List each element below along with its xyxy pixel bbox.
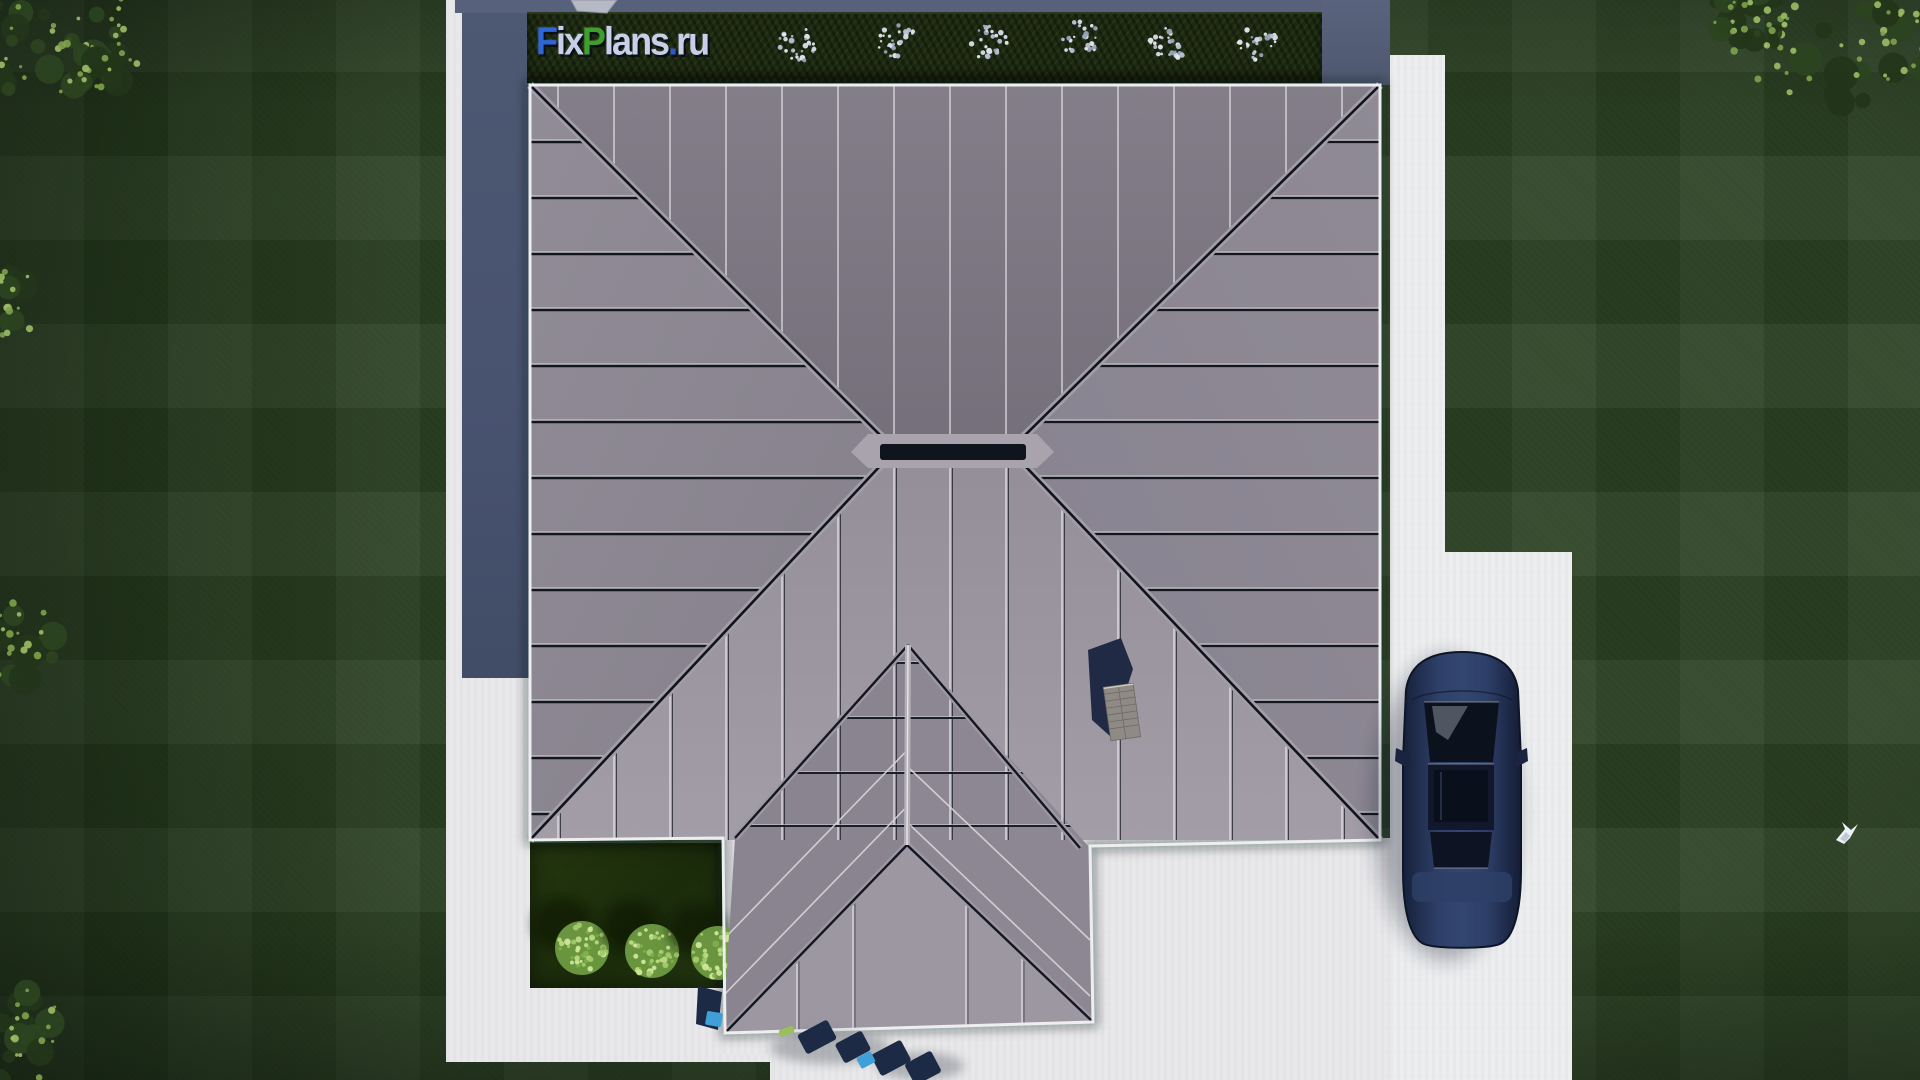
hedge-flower-clusters (778, 20, 1278, 63)
parked-car (1374, 652, 1528, 960)
car-rear-window (1430, 832, 1492, 868)
render-overlay (0, 0, 1920, 1080)
rooftop-cutoff-object (571, 0, 617, 13)
ridge-cap (880, 444, 1026, 460)
flying-bird (1836, 822, 1858, 844)
car-sunroof (1434, 770, 1488, 822)
furniture-blue-cushion (705, 1011, 723, 1028)
car-trunk (1412, 872, 1512, 902)
aerial-render-scene: FixPlans.ru (0, 0, 1920, 1080)
garden-bushes (532, 898, 745, 980)
